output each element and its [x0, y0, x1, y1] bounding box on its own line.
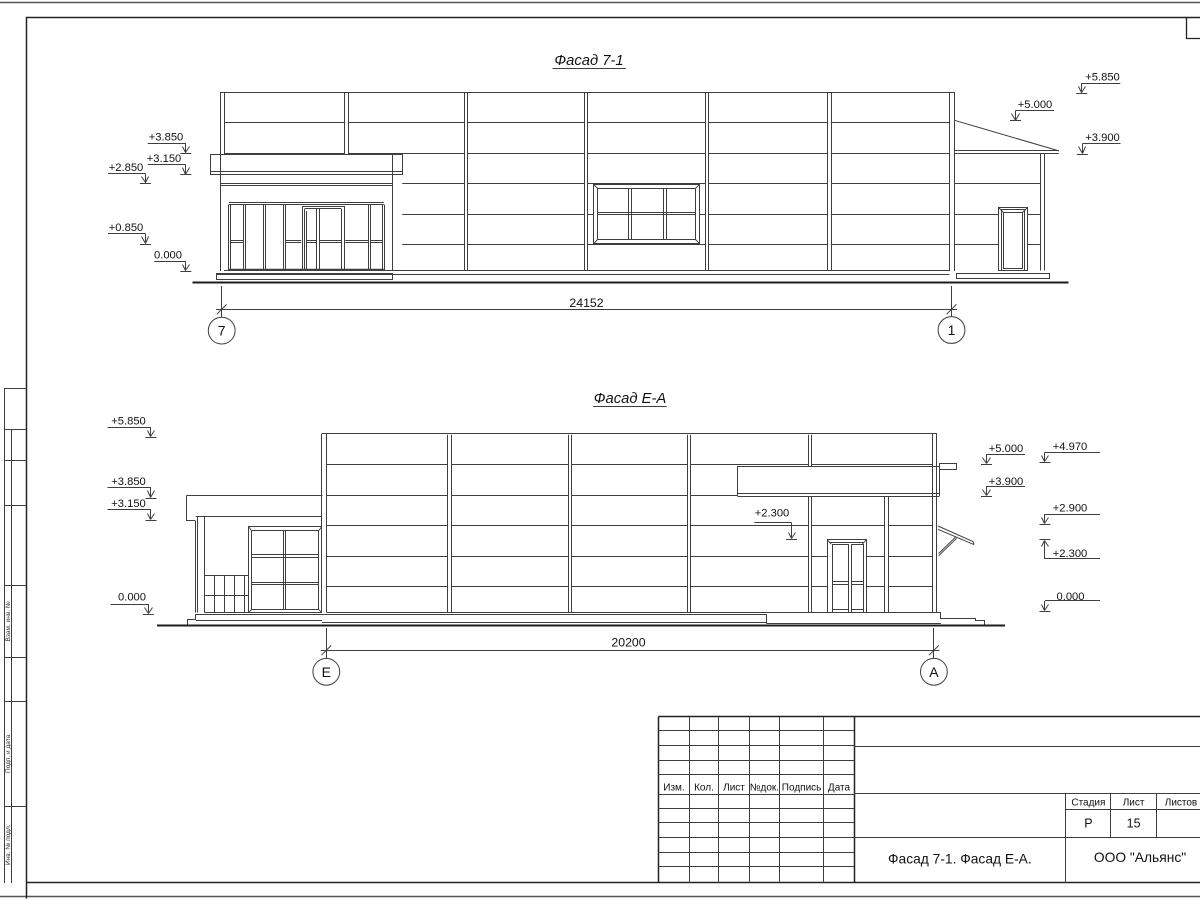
svg-text:7: 7	[218, 323, 226, 339]
svg-text:ООО "Альянс": ООО "Альянс"	[1094, 850, 1186, 865]
svg-text:15: 15	[1127, 817, 1141, 831]
svg-text:+3.150: +3.150	[147, 153, 182, 165]
svg-text:Фасад Е-А: Фасад Е-А	[594, 391, 667, 407]
svg-text:Листов: Листов	[1165, 797, 1198, 808]
svg-text:+5.850: +5.850	[111, 416, 146, 428]
svg-text:+5.850: +5.850	[1085, 72, 1120, 84]
svg-text:Е: Е	[322, 664, 331, 680]
svg-text:Кол.: Кол.	[694, 783, 714, 794]
svg-text:0.000: 0.000	[118, 591, 146, 603]
svg-text:Фасад 7-1: Фасад 7-1	[554, 53, 623, 69]
svg-text:+3.900: +3.900	[989, 476, 1024, 488]
svg-text:20200: 20200	[611, 636, 645, 650]
svg-text:Лист: Лист	[1123, 797, 1145, 808]
svg-text:Дата: Дата	[828, 783, 851, 794]
svg-text:Лист: Лист	[723, 783, 745, 794]
svg-text:+2.300: +2.300	[1053, 548, 1088, 560]
svg-text:Р: Р	[1084, 817, 1092, 831]
svg-text:№док.: №док.	[750, 783, 779, 794]
svg-text:Взам. инв. №: Взам. инв. №	[5, 601, 12, 641]
svg-text:+0.850: +0.850	[109, 222, 144, 234]
svg-text:+5.000: +5.000	[989, 443, 1024, 455]
svg-text:+3.150: +3.150	[111, 498, 146, 510]
svg-text:Инв. № подл.: Инв. № подл.	[5, 824, 12, 865]
svg-text:+2.900: +2.900	[1053, 503, 1088, 515]
svg-text:24152: 24152	[569, 296, 603, 310]
svg-text:Фасад 7-1. Фасад Е-А.: Фасад 7-1. Фасад Е-А.	[888, 852, 1032, 867]
svg-text:+5.000: +5.000	[1018, 99, 1053, 111]
svg-text:А: А	[929, 664, 939, 680]
svg-text:Подп. и дата: Подп. и дата	[5, 734, 12, 773]
svg-text:+3.850: +3.850	[149, 132, 184, 144]
svg-text:+2.300: +2.300	[755, 507, 790, 519]
svg-text:Изм.: Изм.	[663, 783, 684, 794]
svg-text:+3.900: +3.900	[1085, 132, 1120, 144]
svg-text:0.000: 0.000	[1057, 591, 1085, 603]
svg-text:0.000: 0.000	[154, 250, 182, 262]
svg-text:Подпись: Подпись	[782, 783, 822, 794]
svg-text:+3.850: +3.850	[111, 476, 146, 488]
svg-text:1: 1	[948, 322, 956, 338]
svg-text:Стадия: Стадия	[1071, 797, 1105, 808]
svg-text:+2.850: +2.850	[109, 162, 144, 174]
svg-text:+4.970: +4.970	[1053, 441, 1088, 453]
